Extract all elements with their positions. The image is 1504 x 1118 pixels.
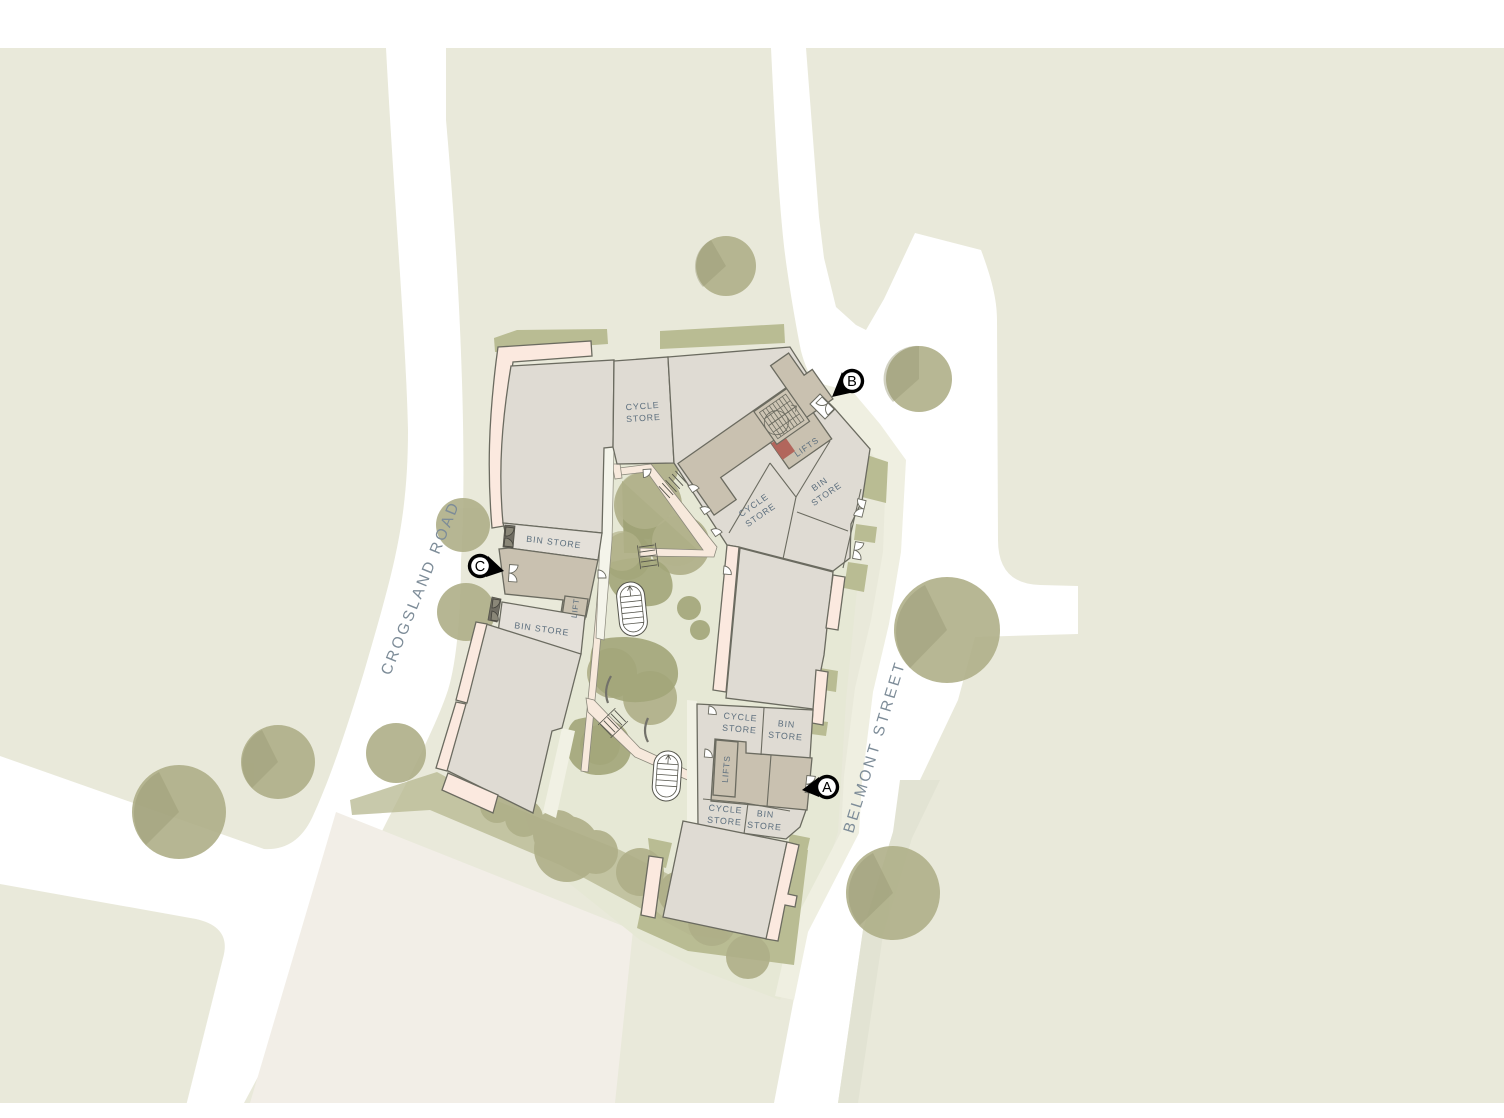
- svg-text:B: B: [847, 374, 857, 390]
- svg-text:BIN: BIN: [756, 808, 774, 819]
- svg-text:C: C: [475, 559, 485, 575]
- svg-text:A: A: [822, 780, 832, 796]
- svg-text:BIN: BIN: [777, 718, 795, 729]
